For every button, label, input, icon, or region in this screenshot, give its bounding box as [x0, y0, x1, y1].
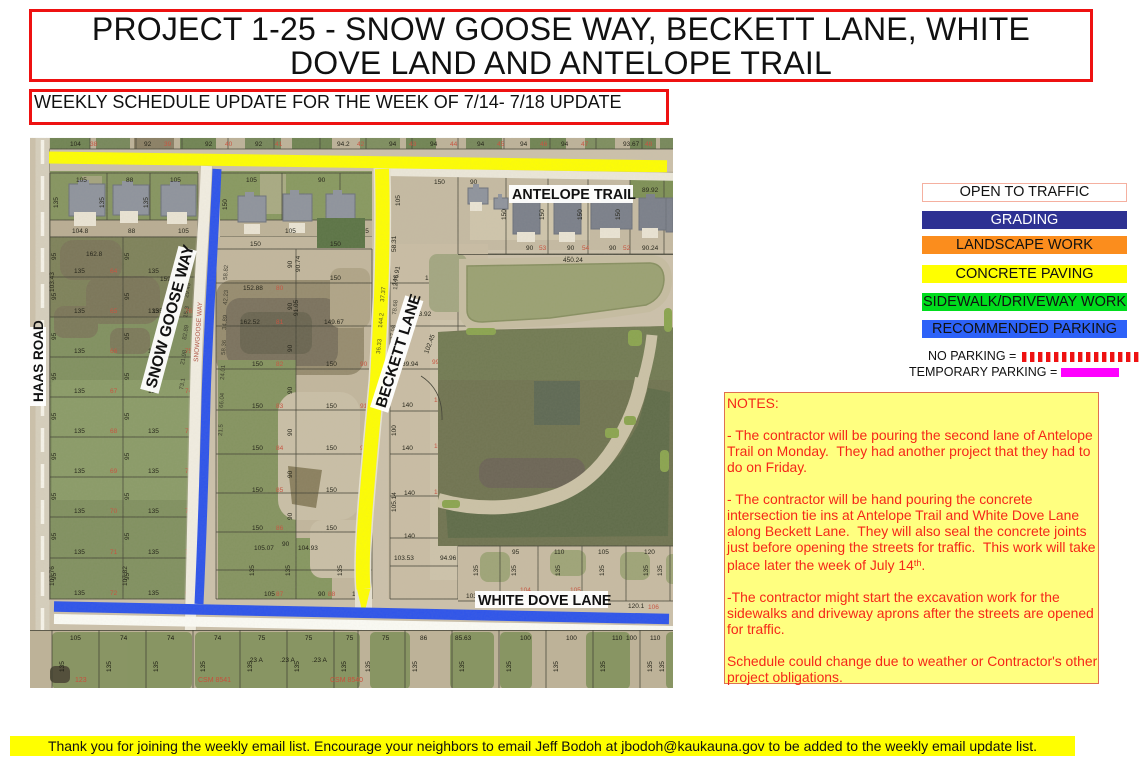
- svg-text:CSM 8541: CSM 8541: [198, 677, 231, 684]
- svg-text:135: 135: [600, 661, 607, 672]
- svg-text:.23 A: .23 A: [248, 657, 263, 664]
- svg-text:135: 135: [659, 661, 666, 672]
- svg-text:100: 100: [566, 635, 577, 642]
- svg-text:75: 75: [258, 635, 266, 642]
- svg-text:.23 A: .23 A: [280, 657, 295, 664]
- svg-text:75: 75: [346, 635, 354, 642]
- svg-text:135: 135: [647, 661, 654, 672]
- svg-text:135: 135: [459, 661, 466, 672]
- svg-text:123: 123: [75, 677, 87, 684]
- svg-text:WHITE DOVE LANE: WHITE DOVE LANE: [478, 593, 611, 609]
- svg-text:135: 135: [412, 661, 419, 672]
- svg-text:74: 74: [214, 635, 222, 642]
- svg-text:135: 135: [365, 661, 372, 672]
- svg-text:74: 74: [167, 635, 175, 642]
- svg-text:74: 74: [120, 635, 128, 642]
- svg-text:135: 135: [106, 661, 113, 672]
- svg-text:ANTELOPE TRAIL: ANTELOPE TRAIL: [512, 187, 636, 203]
- svg-text:HAAS ROAD: HAAS ROAD: [31, 320, 46, 402]
- svg-text:100: 100: [626, 635, 637, 642]
- svg-text:135: 135: [200, 661, 207, 672]
- svg-text:105: 105: [70, 635, 81, 642]
- svg-text:135: 135: [59, 661, 66, 672]
- svg-text:CSM 8540: CSM 8540: [330, 677, 363, 684]
- svg-text:135: 135: [294, 661, 301, 672]
- svg-text:75: 75: [305, 635, 313, 642]
- svg-text:75: 75: [382, 635, 390, 642]
- svg-text:110: 110: [612, 635, 623, 642]
- svg-text:110: 110: [650, 635, 661, 642]
- svg-text:85.63: 85.63: [455, 635, 472, 642]
- svg-text:135: 135: [553, 661, 560, 672]
- svg-text:86: 86: [420, 635, 428, 642]
- svg-text:135: 135: [506, 661, 513, 672]
- svg-text:135: 135: [153, 661, 160, 672]
- svg-text:.23 A: .23 A: [312, 657, 327, 664]
- svg-text:135: 135: [341, 661, 348, 672]
- svg-text:100: 100: [520, 635, 531, 642]
